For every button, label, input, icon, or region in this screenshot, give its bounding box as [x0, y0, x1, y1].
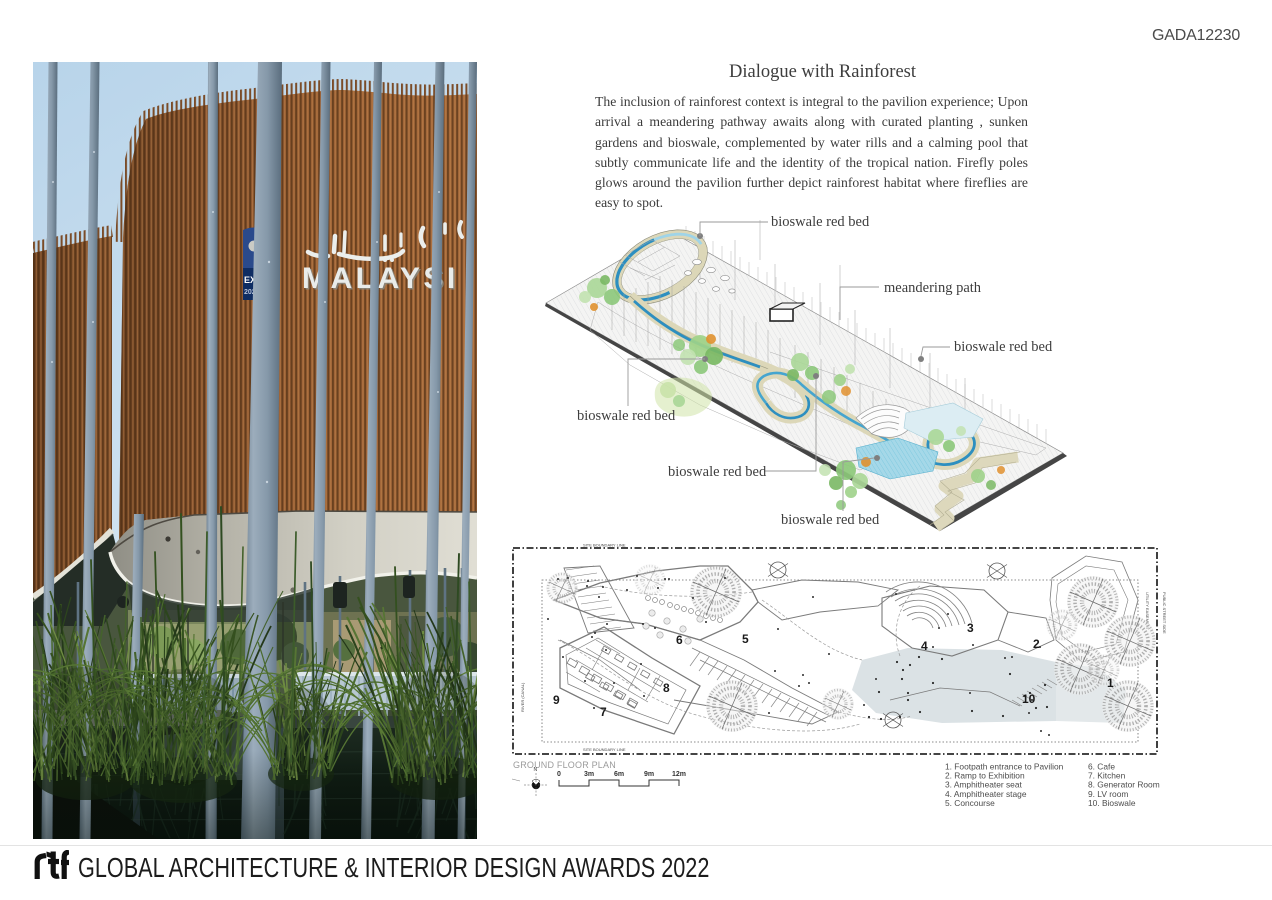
- svg-text:bioswale red bed: bioswale red bed: [954, 339, 1053, 355]
- svg-text:bioswale red bed: bioswale red bed: [781, 512, 880, 528]
- svg-text:bioswale red bed: bioswale red bed: [771, 214, 870, 230]
- svg-text:9m: 9m: [644, 771, 654, 778]
- svg-text:6m: 6m: [614, 771, 624, 778]
- svg-text:10. Bioswale: 10. Bioswale: [1088, 798, 1136, 808]
- svg-text:N: N: [534, 767, 538, 773]
- svg-text:RIVER (CANAL): RIVER (CANAL): [520, 682, 525, 712]
- svg-text:10: 10: [1022, 692, 1036, 706]
- svg-text:3m: 3m: [584, 771, 594, 778]
- svg-text:0: 0: [557, 771, 561, 778]
- svg-text:bioswale red bed: bioswale red bed: [668, 464, 767, 480]
- svg-text:PUBLIC STREET SIDE: PUBLIC STREET SIDE: [1162, 592, 1167, 634]
- svg-text:7: 7: [600, 705, 607, 719]
- svg-text:6: 6: [676, 633, 683, 647]
- svg-text:5. Concourse: 5. Concourse: [945, 798, 995, 808]
- svg-text:9: 9: [553, 693, 560, 707]
- svg-text:2: 2: [1033, 637, 1040, 651]
- svg-text:8: 8: [663, 681, 670, 695]
- svg-text:5: 5: [742, 632, 749, 646]
- svg-text:4: 4: [921, 639, 928, 653]
- svg-text:meandering path: meandering path: [884, 280, 982, 296]
- svg-text:GROUND FLOOR PLAN: GROUND FLOOR PLAN: [513, 760, 616, 770]
- svg-text:12m: 12m: [672, 771, 686, 778]
- svg-text:1: 1: [1107, 676, 1114, 690]
- svg-text:bioswale red bed: bioswale red bed: [577, 408, 676, 424]
- svg-text:3: 3: [967, 621, 974, 635]
- svg-text:SITE BOUNDARY LINE: SITE BOUNDARY LINE: [583, 543, 626, 548]
- svg-text:SITE BOUNDARY LINE: SITE BOUNDARY LINE: [583, 747, 626, 752]
